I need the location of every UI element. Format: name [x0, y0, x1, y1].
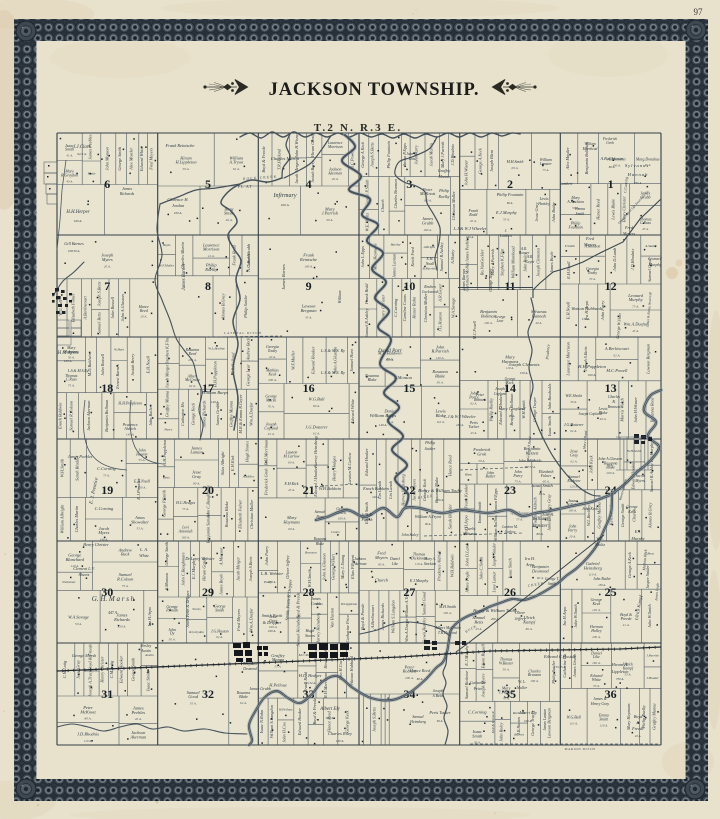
svg-text:Van Huston: Van Huston	[329, 608, 334, 628]
svg-text:Hoover: Hoover	[518, 251, 530, 255]
svg-text:Smith: Smith	[472, 733, 483, 738]
svg-text:A.Miller: A.Miller	[242, 474, 255, 478]
svg-text:Samuel R.Ashley: Samuel R.Ashley	[649, 463, 654, 492]
svg-text:50 A.: 50 A.	[169, 638, 176, 642]
svg-text:75 A.: 75 A.	[182, 507, 189, 511]
svg-text:Haymans: Haymans	[282, 520, 300, 525]
svg-text:Samuel: Samuel	[412, 715, 423, 719]
svg-text:Wm.A.Duefur: Wm.A.Duefur	[249, 608, 254, 632]
svg-text:Sholtz: Sholtz	[595, 542, 605, 547]
svg-text:160 A.: 160 A.	[74, 219, 83, 223]
svg-text:Enoch Baldwin: Enoch Baldwin	[362, 486, 389, 491]
svg-text:Meyers: Meyers	[583, 242, 597, 247]
svg-text:George Smith: George Smith	[130, 658, 135, 682]
svg-text:J.B.Huston: J.B.Huston	[516, 717, 521, 735]
svg-text:H.Lippleton: H.Lippleton	[174, 160, 197, 165]
svg-text:Hunt: Hunt	[315, 515, 324, 519]
svg-text:Hannah: Hannah	[627, 172, 649, 177]
svg-text:Wm.A.Duefur: Wm.A.Duefur	[248, 402, 253, 426]
svg-text:James Grubb: James Grubb	[215, 402, 220, 426]
svg-text:Tucker: Tucker	[469, 425, 480, 429]
svg-text:Lambert: Lambert	[559, 182, 574, 186]
svg-text:Morrison: Morrison	[202, 247, 220, 252]
svg-text:70 A.: 70 A.	[593, 684, 600, 688]
svg-text:Murphy: Murphy	[630, 536, 644, 541]
svg-text:Isaac Smith: Isaac Smith	[145, 671, 150, 692]
svg-text:Sheets: Sheets	[79, 572, 90, 577]
svg-text:Like: Like	[592, 655, 600, 659]
svg-text:George A.Keck: George A.Keck	[477, 148, 482, 174]
svg-text:Albert McCruby: Albert McCruby	[434, 625, 461, 630]
svg-text:Samuel R.Colson: Samuel R.Colson	[69, 401, 74, 431]
svg-text:Catharine: Catharine	[470, 680, 486, 685]
svg-text:H.Pellouz: H.Pellouz	[268, 683, 287, 688]
svg-text:Hance Reed: Hance Reed	[448, 454, 453, 477]
svg-text:Boyd & Preede: Boyd & Preede	[296, 592, 301, 618]
svg-text:15: 15	[403, 381, 415, 395]
svg-text:Edwin Russell: Edwin Russell	[481, 643, 486, 669]
svg-text:William Morehead: William Morehead	[510, 245, 515, 278]
svg-text:Clement L.V.: Clement L.V.	[73, 566, 94, 571]
svg-text:Morrison: Morrison	[327, 145, 343, 149]
svg-text:96 A.: 96 A.	[425, 522, 432, 526]
svg-text:Parry: Parry	[512, 474, 522, 478]
svg-text:4: 4	[306, 177, 312, 191]
svg-text:Shetsman: Shetsman	[463, 532, 477, 536]
svg-text:10: 10	[403, 279, 415, 293]
svg-text:9: 9	[306, 279, 312, 293]
svg-text:Elizabeth Fulner: Elizabeth Fulner	[238, 499, 243, 529]
svg-text:360 A.: 360 A.	[326, 716, 335, 720]
svg-text:80 A.: 80 A.	[526, 627, 533, 631]
svg-text:Christian Moller: Christian Moller	[423, 293, 428, 322]
svg-text:Stores: Stores	[305, 633, 315, 638]
svg-text:Charles Brunson: Charles Brunson	[393, 179, 398, 208]
svg-text:Lear: Lear	[496, 319, 504, 323]
svg-text:William Burps: William Burps	[370, 413, 397, 418]
svg-text:Geyer: Geyer	[525, 260, 535, 264]
svg-text:Lantan: Lantan	[189, 450, 203, 455]
svg-text:62 A.: 62 A.	[240, 701, 247, 705]
svg-text:Daniel: Daniel	[389, 557, 400, 561]
svg-text:Reuben: Reuben	[423, 285, 435, 289]
svg-text:Akerman: Akerman	[129, 734, 147, 739]
svg-text:200 A.: 200 A.	[405, 676, 414, 680]
svg-text:James Lantan: James Lantan	[392, 254, 397, 278]
svg-text:Edward Hooker: Edward Hooker	[311, 346, 316, 375]
svg-text:John B.: John B.	[362, 513, 373, 517]
svg-text:13: 13	[605, 381, 617, 395]
svg-text:R.Greydon: R.Greydon	[188, 630, 204, 634]
svg-text:139 A.: 139 A.	[598, 583, 606, 587]
svg-text:Robnett: Robnett	[473, 398, 487, 402]
svg-text:E.J.: E.J.	[634, 529, 642, 534]
svg-text:20 A.: 20 A.	[269, 355, 276, 359]
svg-text:E.H.Noall: E.H.Noall	[145, 355, 150, 374]
svg-text:Mary Haymans: Mary Haymans	[626, 703, 631, 731]
svg-text:160 A.: 160 A.	[174, 211, 183, 215]
svg-text:Groh: Groh	[606, 141, 614, 145]
svg-text:Carlow: Carlow	[505, 530, 516, 534]
svg-text:George Keck: George Keck	[191, 403, 196, 425]
svg-text:J.G.Huston: J.G.Huston	[211, 629, 229, 633]
svg-text:Smith: Smith	[576, 212, 585, 216]
svg-text:140 A.: 140 A.	[379, 423, 388, 427]
svg-text:Church: Church	[375, 578, 389, 583]
svg-text:140 A.: 140 A.	[436, 356, 445, 360]
svg-text:H.H.Poppleton: H.H.Poppleton	[162, 440, 167, 467]
svg-text:Jordan: Jordan	[172, 203, 185, 208]
svg-text:Desmond: Desmond	[242, 667, 257, 671]
svg-text:John D.Lamb: John D.Lamb	[612, 247, 617, 271]
svg-text:Blake: Blake	[316, 542, 325, 546]
svg-text:108.50 A.: 108.50 A.	[68, 249, 80, 253]
svg-text:Akerman: Akerman	[353, 562, 367, 566]
svg-text:A.R.: A.R.	[526, 255, 534, 259]
svg-text:41 A.: 41 A.	[208, 254, 215, 258]
svg-text:E.H.Noall: E.H.Noall	[566, 301, 571, 320]
svg-text:Brunson: Brunson	[528, 673, 541, 677]
svg-text:L.B. Webster: L.B. Webster	[260, 571, 284, 576]
svg-text:62 A.: 62 A.	[233, 167, 240, 171]
svg-text:Henry Hodges: Henry Hodges	[332, 456, 337, 482]
svg-text:White: White	[592, 678, 601, 682]
svg-text:James Peebles: James Peebles	[68, 454, 93, 459]
svg-text:M.D.Baldwin: M.D.Baldwin	[87, 353, 92, 377]
svg-text:Parry: Parry	[567, 528, 577, 532]
svg-text:Lewis: Lewis	[539, 197, 549, 201]
svg-text:Joseph Clements: Joseph Clements	[508, 362, 539, 367]
svg-text:70 A.: 70 A.	[268, 405, 275, 409]
svg-text:McKnott: McKnott	[79, 709, 96, 714]
svg-text:White: White	[139, 553, 149, 558]
svg-text:Lippleton: Lippleton	[611, 669, 630, 674]
svg-text:Ernest Barnes: Ernest Barnes	[115, 364, 120, 390]
svg-text:George Marsh: George Marsh	[72, 653, 96, 658]
svg-text:Myers: Myers	[634, 479, 645, 483]
svg-text:55 A.: 55 A.	[503, 218, 510, 222]
svg-text:Keck: Keck	[592, 602, 601, 606]
svg-text:Henry & William Touhy: Henry & William Touhy	[417, 488, 463, 493]
svg-text:43 A.: 43 A.	[642, 227, 649, 231]
svg-text:160 A.: 160 A.	[181, 536, 190, 540]
svg-text:50 A.: 50 A.	[607, 463, 614, 467]
svg-text:George Smith: George Smith	[620, 504, 625, 528]
svg-text:25: 25	[605, 585, 617, 599]
svg-text:Elizabeth Fulner: Elizabeth Fulner	[70, 293, 75, 323]
svg-text:Christian Moller: Christian Moller	[249, 499, 254, 528]
svg-text:Charles Martin: Charles Martin	[271, 156, 300, 161]
svg-text:Ira H.Arpo: Ira H.Arpo	[562, 606, 567, 627]
svg-text:J.G.Dotterer: J.G.Dotterer	[305, 424, 328, 429]
svg-text:Charles Martin: Charles Martin	[74, 506, 79, 533]
svg-text:Blake: Blake	[435, 373, 445, 378]
svg-text:Rosanna: Rosanna	[313, 537, 327, 541]
svg-text:R.Colson: R.Colson	[116, 576, 134, 581]
svg-text:W.H.Baldwin: W.H.Baldwin	[449, 554, 454, 577]
svg-text:Frank Kemler: Frank Kemler	[463, 484, 468, 510]
svg-text:A.Berlincourt: A.Berlincourt	[370, 604, 375, 629]
svg-text:John A.Glasson: John A.Glasson	[120, 294, 125, 321]
svg-text:100 A.: 100 A.	[466, 235, 474, 239]
svg-text:Joseph S.Betts: Joseph S.Betts	[248, 556, 253, 581]
svg-text:Anson P.Epps: Anson P.Epps	[493, 488, 498, 513]
svg-text:Blanchard: Blanchard	[66, 557, 85, 562]
svg-text:40 A.: 40 A.	[66, 179, 73, 183]
svg-text:23: 23	[504, 483, 516, 497]
svg-text:2: 2	[507, 177, 513, 191]
svg-text:7: 7	[104, 279, 110, 293]
svg-text:E.H.Kirk: E.H.Kirk	[283, 482, 298, 486]
svg-text:Philip Roelky: Philip Roelky	[489, 398, 494, 422]
svg-text:260 A.: 260 A.	[436, 498, 445, 502]
svg-text:447 A.: 447 A.	[108, 611, 118, 615]
svg-text:John W.: John W.	[406, 152, 418, 156]
svg-text:35: 35	[504, 687, 516, 701]
svg-text:E.H.Noall: E.H.Noall	[566, 261, 571, 280]
svg-text:John H.Wisner: John H.Wisner	[463, 160, 468, 186]
svg-text:160 A.: 160 A.	[524, 719, 532, 723]
svg-text:43 A.: 43 A.	[635, 734, 642, 738]
svg-text:H.Pellouz: H.Pellouz	[278, 708, 293, 712]
svg-text:George Keck: George Keck	[344, 710, 349, 732]
svg-text:75 A.: 75 A.	[103, 474, 110, 478]
svg-text:6: 6	[104, 177, 110, 191]
svg-text:Albright: Albright	[423, 245, 436, 249]
svg-text:Lewis Blake: Lewis Blake	[610, 199, 615, 221]
svg-text:Parry: Parry	[163, 427, 172, 431]
svg-text:75 A.: 75 A.	[632, 305, 639, 309]
svg-text:Fred: Fred	[585, 236, 595, 241]
svg-text:8: 8	[205, 279, 211, 293]
svg-text:Dr.Leroy Webster: Dr.Leroy Webster	[184, 556, 215, 561]
svg-text:John Russell: John Russell	[100, 353, 105, 376]
svg-text:Ketch Ford: Ketch Ford	[410, 246, 415, 267]
svg-text:11: 11	[504, 279, 515, 293]
svg-text:Hartley: Hartley	[537, 202, 550, 206]
svg-text:P.Smith: P.Smith	[165, 609, 178, 613]
svg-text:Morehead: Morehead	[582, 147, 598, 151]
svg-text:Philip: Philip	[424, 440, 435, 445]
svg-text:James Grubb: James Grubb	[249, 686, 270, 691]
svg-text:H M Ayres: H M Ayres	[56, 351, 78, 356]
svg-text:Smith: Smith	[548, 582, 556, 586]
svg-text:80 A.: 80 A.	[507, 201, 514, 205]
svg-text:A.C.Bobbs: A.C.Bobbs	[246, 252, 251, 273]
svg-text:Keck: Keck	[627, 510, 636, 514]
svg-text:Boyd & Preede: Boyd & Preede	[312, 698, 317, 724]
svg-text:Watson Hubbard: Watson Hubbard	[349, 655, 354, 685]
svg-text:E.J.Murphy: E.J.Murphy	[191, 559, 196, 580]
svg-text:Touhy: Touhy	[268, 349, 278, 353]
svg-text:32: 32	[202, 687, 214, 701]
svg-text:William S.Langdon: William S.Langdon	[390, 600, 395, 633]
svg-text:George A.Keck: George A.Keck	[627, 552, 632, 578]
svg-text:160 A.: 160 A.	[588, 373, 597, 377]
svg-text:Lanster: Lanster	[539, 162, 552, 166]
svg-text:200 A.: 200 A.	[592, 635, 601, 639]
svg-text:45 A.: 45 A.	[470, 431, 477, 435]
svg-text:James Boyle: James Boyle	[219, 574, 224, 596]
svg-text:William A.Tryon: William A.Tryon	[415, 514, 441, 519]
svg-text:T.Smith: T.Smith	[565, 244, 576, 248]
svg-text:Isaac Smith: Isaac Smith	[530, 483, 553, 488]
svg-text:LATERAL DITCH: LATERAL DITCH	[224, 331, 262, 335]
svg-text:Smith Petitt & Dripper: Smith Petitt & Dripper	[185, 590, 190, 627]
svg-text:William: William	[337, 290, 342, 303]
svg-text:H.C.Hedges: H.C.Hedges	[175, 501, 196, 505]
svg-text:1: 1	[608, 177, 614, 191]
svg-text:Gray: Gray	[192, 474, 201, 479]
svg-text:99 A.: 99 A.	[509, 414, 516, 418]
svg-text:Redd: Redd	[468, 213, 477, 217]
svg-text:140 A.: 140 A.	[211, 400, 220, 404]
svg-text:H.H.Poppleton: H.H.Poppleton	[117, 402, 142, 406]
svg-text:J.: J.	[505, 229, 508, 233]
svg-text:Lawson Bergman: Lawson Bergman	[646, 344, 651, 375]
svg-text:Love Lamar: Love Lamar	[491, 571, 496, 593]
svg-text:Cox: Cox	[545, 518, 551, 522]
svg-text:160 A.: 160 A.	[64, 359, 73, 363]
svg-text:Clarence H.: Clarence H.	[167, 197, 188, 202]
svg-text:30 A.: 30 A.	[437, 381, 444, 385]
svg-text:Stores: Stores	[192, 607, 201, 611]
svg-text:B.Parrish: B.Parrish	[431, 349, 449, 354]
svg-text:Samuel: Samuel	[315, 510, 326, 514]
svg-text:A.Tryon: A.Tryon	[228, 160, 244, 165]
svg-text:Butler: Butler	[486, 475, 496, 479]
svg-text:W.L.Beckley: W.L.Beckley	[208, 347, 225, 351]
svg-text:W.G.Ball: W.G.Ball	[567, 716, 581, 720]
svg-text:62 A.: 62 A.	[613, 354, 620, 358]
svg-text:45 A.: 45 A.	[288, 488, 295, 492]
svg-text:100 A.: 100 A.	[568, 509, 577, 513]
svg-text:Arpo: Arpo	[525, 562, 534, 567]
svg-text:Roelky: Roelky	[438, 194, 450, 199]
svg-text:Hance Reed: Hance Reed	[327, 710, 332, 733]
svg-text:55 A.: 55 A.	[137, 527, 144, 531]
svg-text:200 A.: 200 A.	[484, 321, 493, 325]
svg-text:Alonzo B.Gray: Alonzo B.Gray	[647, 503, 652, 530]
svg-text:Sarah Bludder: Sarah Bludder	[448, 504, 453, 530]
svg-text:G. H. M a r s h: G. H. M a r s h	[92, 595, 135, 603]
svg-text:A.Monson: A.Monson	[219, 548, 224, 567]
svg-text:60 A.: 60 A.	[537, 576, 544, 580]
svg-text:Fulner: Fulner	[540, 474, 552, 478]
svg-text:Good: Good	[188, 694, 199, 699]
svg-text:Graffey Manna: Graffey Manna	[229, 401, 234, 427]
svg-text:Peris Tucker: Peris Tucker	[428, 710, 451, 715]
svg-text:Akerman: Akerman	[327, 171, 342, 175]
svg-text:Joseph S.Betts: Joseph S.Betts	[96, 281, 101, 306]
svg-text:Henry Gray: Henry Gray	[590, 702, 610, 706]
svg-text:William S.Langdon: William S.Langdon	[269, 705, 274, 738]
svg-text:M.R.& Emma R.: M.R.& Emma R.	[491, 711, 495, 735]
svg-text:730 A.: 730 A.	[616, 677, 624, 681]
svg-text:90 A.: 90 A.	[326, 218, 333, 222]
svg-text:W.E.: W.E.	[596, 536, 603, 541]
svg-text:Myers: Myers	[101, 257, 113, 262]
svg-text:18: 18	[101, 381, 113, 395]
svg-text:J.G.Dotterer: J.G.Dotterer	[564, 423, 584, 427]
svg-text:Grubb: Grubb	[311, 602, 321, 606]
svg-text:70 A.: 70 A.	[589, 277, 596, 281]
svg-text:Groh: Groh	[477, 451, 487, 456]
svg-text:John D.Lamb: John D.Lamb	[465, 542, 470, 566]
svg-text:Jeffrey: Jeffrey	[515, 616, 526, 621]
svg-text:Henry Christer: Henry Christer	[82, 542, 109, 547]
svg-text:T.2 N. R.3 E.: T.2 N. R.3 E.	[314, 122, 403, 134]
svg-text:Joseph S.Betts: Joseph S.Betts	[372, 707, 377, 732]
svg-text:W.E.Sholtz: W.E.Sholtz	[565, 394, 582, 398]
svg-text:Antonish: Antonish	[178, 530, 193, 534]
svg-text:A.Berlincourt: A.Berlincourt	[604, 346, 630, 351]
svg-text:Charles Riley: Charles Riley	[328, 731, 352, 736]
svg-text:Lockwood: Lockwood	[421, 290, 438, 294]
svg-text:100 A.: 100 A.	[530, 679, 539, 683]
svg-text:Heinsberg: Heinsberg	[409, 720, 426, 724]
svg-text:Graffey Manna: Graffey Manna	[652, 704, 657, 730]
svg-text:Heinsberg: Heinsberg	[583, 565, 603, 570]
svg-text:James &: James &	[593, 697, 606, 701]
svg-text:60 A.: 60 A.	[288, 460, 295, 464]
svg-text:Hiram H.: Hiram H.	[611, 662, 629, 667]
svg-text:Hiram Gandy: Hiram Gandy	[310, 133, 315, 158]
svg-text:Watson Hubbard: Watson Hubbard	[571, 306, 601, 311]
svg-text:Preede: Preede	[620, 617, 632, 621]
svg-text:Catharine Price: Catharine Price	[345, 615, 350, 643]
svg-text:Coons: Coons	[331, 530, 340, 534]
svg-text:Marg.Donahue: Marg.Donahue	[635, 157, 660, 161]
svg-text:L. A.: L. A.	[139, 547, 148, 552]
svg-text:40 A.: 40 A.	[332, 177, 339, 181]
svg-text:Edward White: Edward White	[350, 399, 355, 425]
svg-text:Edward Hooker: Edward Hooker	[297, 708, 302, 737]
svg-text:James Barnes: James Barnes	[182, 263, 187, 290]
svg-text:Aldrich: Aldrich	[123, 427, 136, 431]
svg-text:H.H.Herper: H.H.Herper	[65, 210, 89, 215]
svg-text:C.Corning: C.Corning	[97, 466, 116, 471]
svg-text:L.J.& W.J Wheeler: L.J.& W.J Wheeler	[452, 226, 486, 231]
svg-text:James Peebles: James Peebles	[465, 237, 470, 263]
svg-text:Reed: Reed	[139, 309, 148, 313]
svg-text:A.Skatty: A.Skatty	[450, 250, 455, 265]
svg-text:George P.Smith: George P.Smith	[162, 490, 167, 517]
svg-text:62 A.: 62 A.	[189, 384, 196, 388]
svg-text:Boyd & Freede: Boyd & Freede	[261, 146, 266, 172]
svg-text:160 A.: 160 A.	[456, 423, 464, 427]
svg-text:Mary Coupland: Mary Coupland	[498, 406, 527, 411]
svg-text:60 A.: 60 A.	[512, 166, 519, 170]
svg-text:Fred: Fred	[624, 225, 634, 230]
svg-text:Meyers: Meyers	[374, 555, 388, 560]
svg-text:150 A.: 150 A.	[582, 317, 590, 321]
svg-text:C.Russ: C.Russ	[640, 221, 651, 225]
svg-text:Keck: Keck	[268, 372, 277, 376]
svg-text:40 A.: 40 A.	[600, 417, 607, 421]
svg-text:MARION DITCH: MARION DITCH	[565, 747, 596, 751]
svg-text:Blem: Blem	[465, 472, 473, 476]
svg-text:JACKSON TOWNSHIP.: JACKSON TOWNSHIP.	[269, 80, 480, 100]
svg-text:David Parr: David Parr	[377, 348, 403, 354]
svg-text:W.Hart: W.Hart	[114, 347, 125, 351]
svg-text:Henry & William Touhy: Henry & William Touhy	[472, 608, 518, 613]
svg-text:W.H.Smith: W.H.Smith	[60, 459, 65, 477]
svg-text:Stockton: Stockton	[424, 562, 437, 566]
svg-text:John W.Smith: John W.Smith	[647, 604, 652, 627]
svg-text:Lawson Bergman: Lawson Bergman	[546, 708, 551, 739]
svg-text:L.S.& M.S. Ry: L.S.& M.S. Ry	[320, 370, 345, 375]
